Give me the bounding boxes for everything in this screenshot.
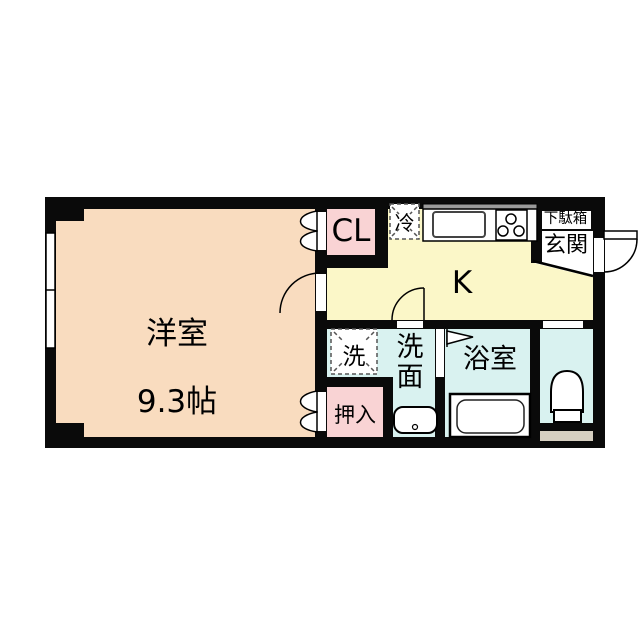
opening-toilet-door <box>541 321 585 328</box>
living-room-label: 洋室 9.3帖 <box>77 283 277 453</box>
oshiire-label: 押入 <box>327 403 383 427</box>
living-room-name: 洋室 <box>77 317 277 351</box>
opening-front-door <box>594 236 604 274</box>
front-door-icon <box>604 231 637 272</box>
opening-bathroom-door <box>436 329 444 377</box>
refrigerator-label: 冷 <box>390 212 419 235</box>
wall-closet-bottom <box>315 255 388 268</box>
wall-bathroom-toilet <box>530 320 540 437</box>
opening-oshiire <box>316 390 326 433</box>
wall-left <box>45 197 56 448</box>
washer-label: 洗 <box>331 344 377 370</box>
entrance-label: 玄関 <box>541 233 591 258</box>
bathroom-label: 浴室 <box>448 344 532 375</box>
kitchen-label: K <box>440 266 484 302</box>
washroom-label: 洗 面 <box>395 333 425 393</box>
wall-oshiire-right <box>383 377 393 437</box>
wall-oshiire-top <box>315 377 393 387</box>
shoe-cabinet-label: 下駄箱 <box>539 211 592 228</box>
entrance-step <box>540 431 593 441</box>
opening-washroom-door <box>395 321 425 328</box>
opening-living-kitchen <box>316 272 326 313</box>
opening-closet <box>316 210 326 252</box>
wall-corner-top-left <box>45 197 84 221</box>
floorplan: 洋室 9.3帖 K CL 冷 下駄箱 玄関 洗 洗 面 浴室 押入 <box>0 0 640 640</box>
room-toilet <box>540 329 593 423</box>
living-room-size: 9.3帖 <box>77 385 277 419</box>
closet-label: CL <box>327 214 375 250</box>
